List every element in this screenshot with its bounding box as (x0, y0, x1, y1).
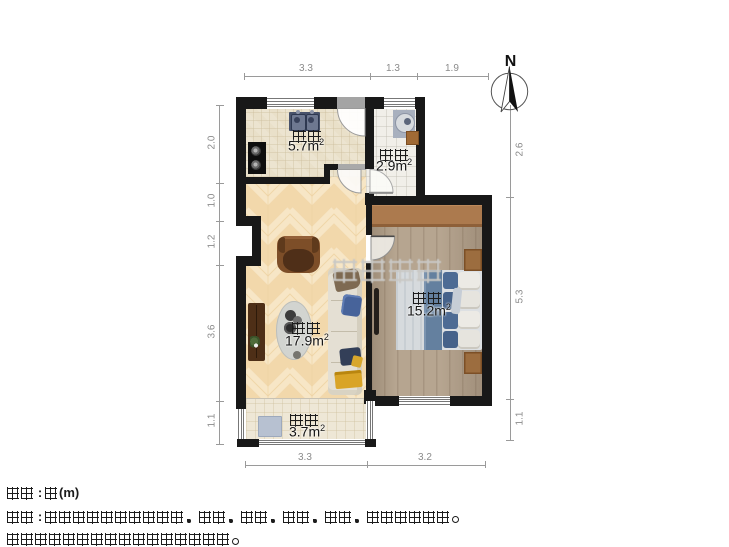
svg-text:N: N (505, 53, 517, 70)
